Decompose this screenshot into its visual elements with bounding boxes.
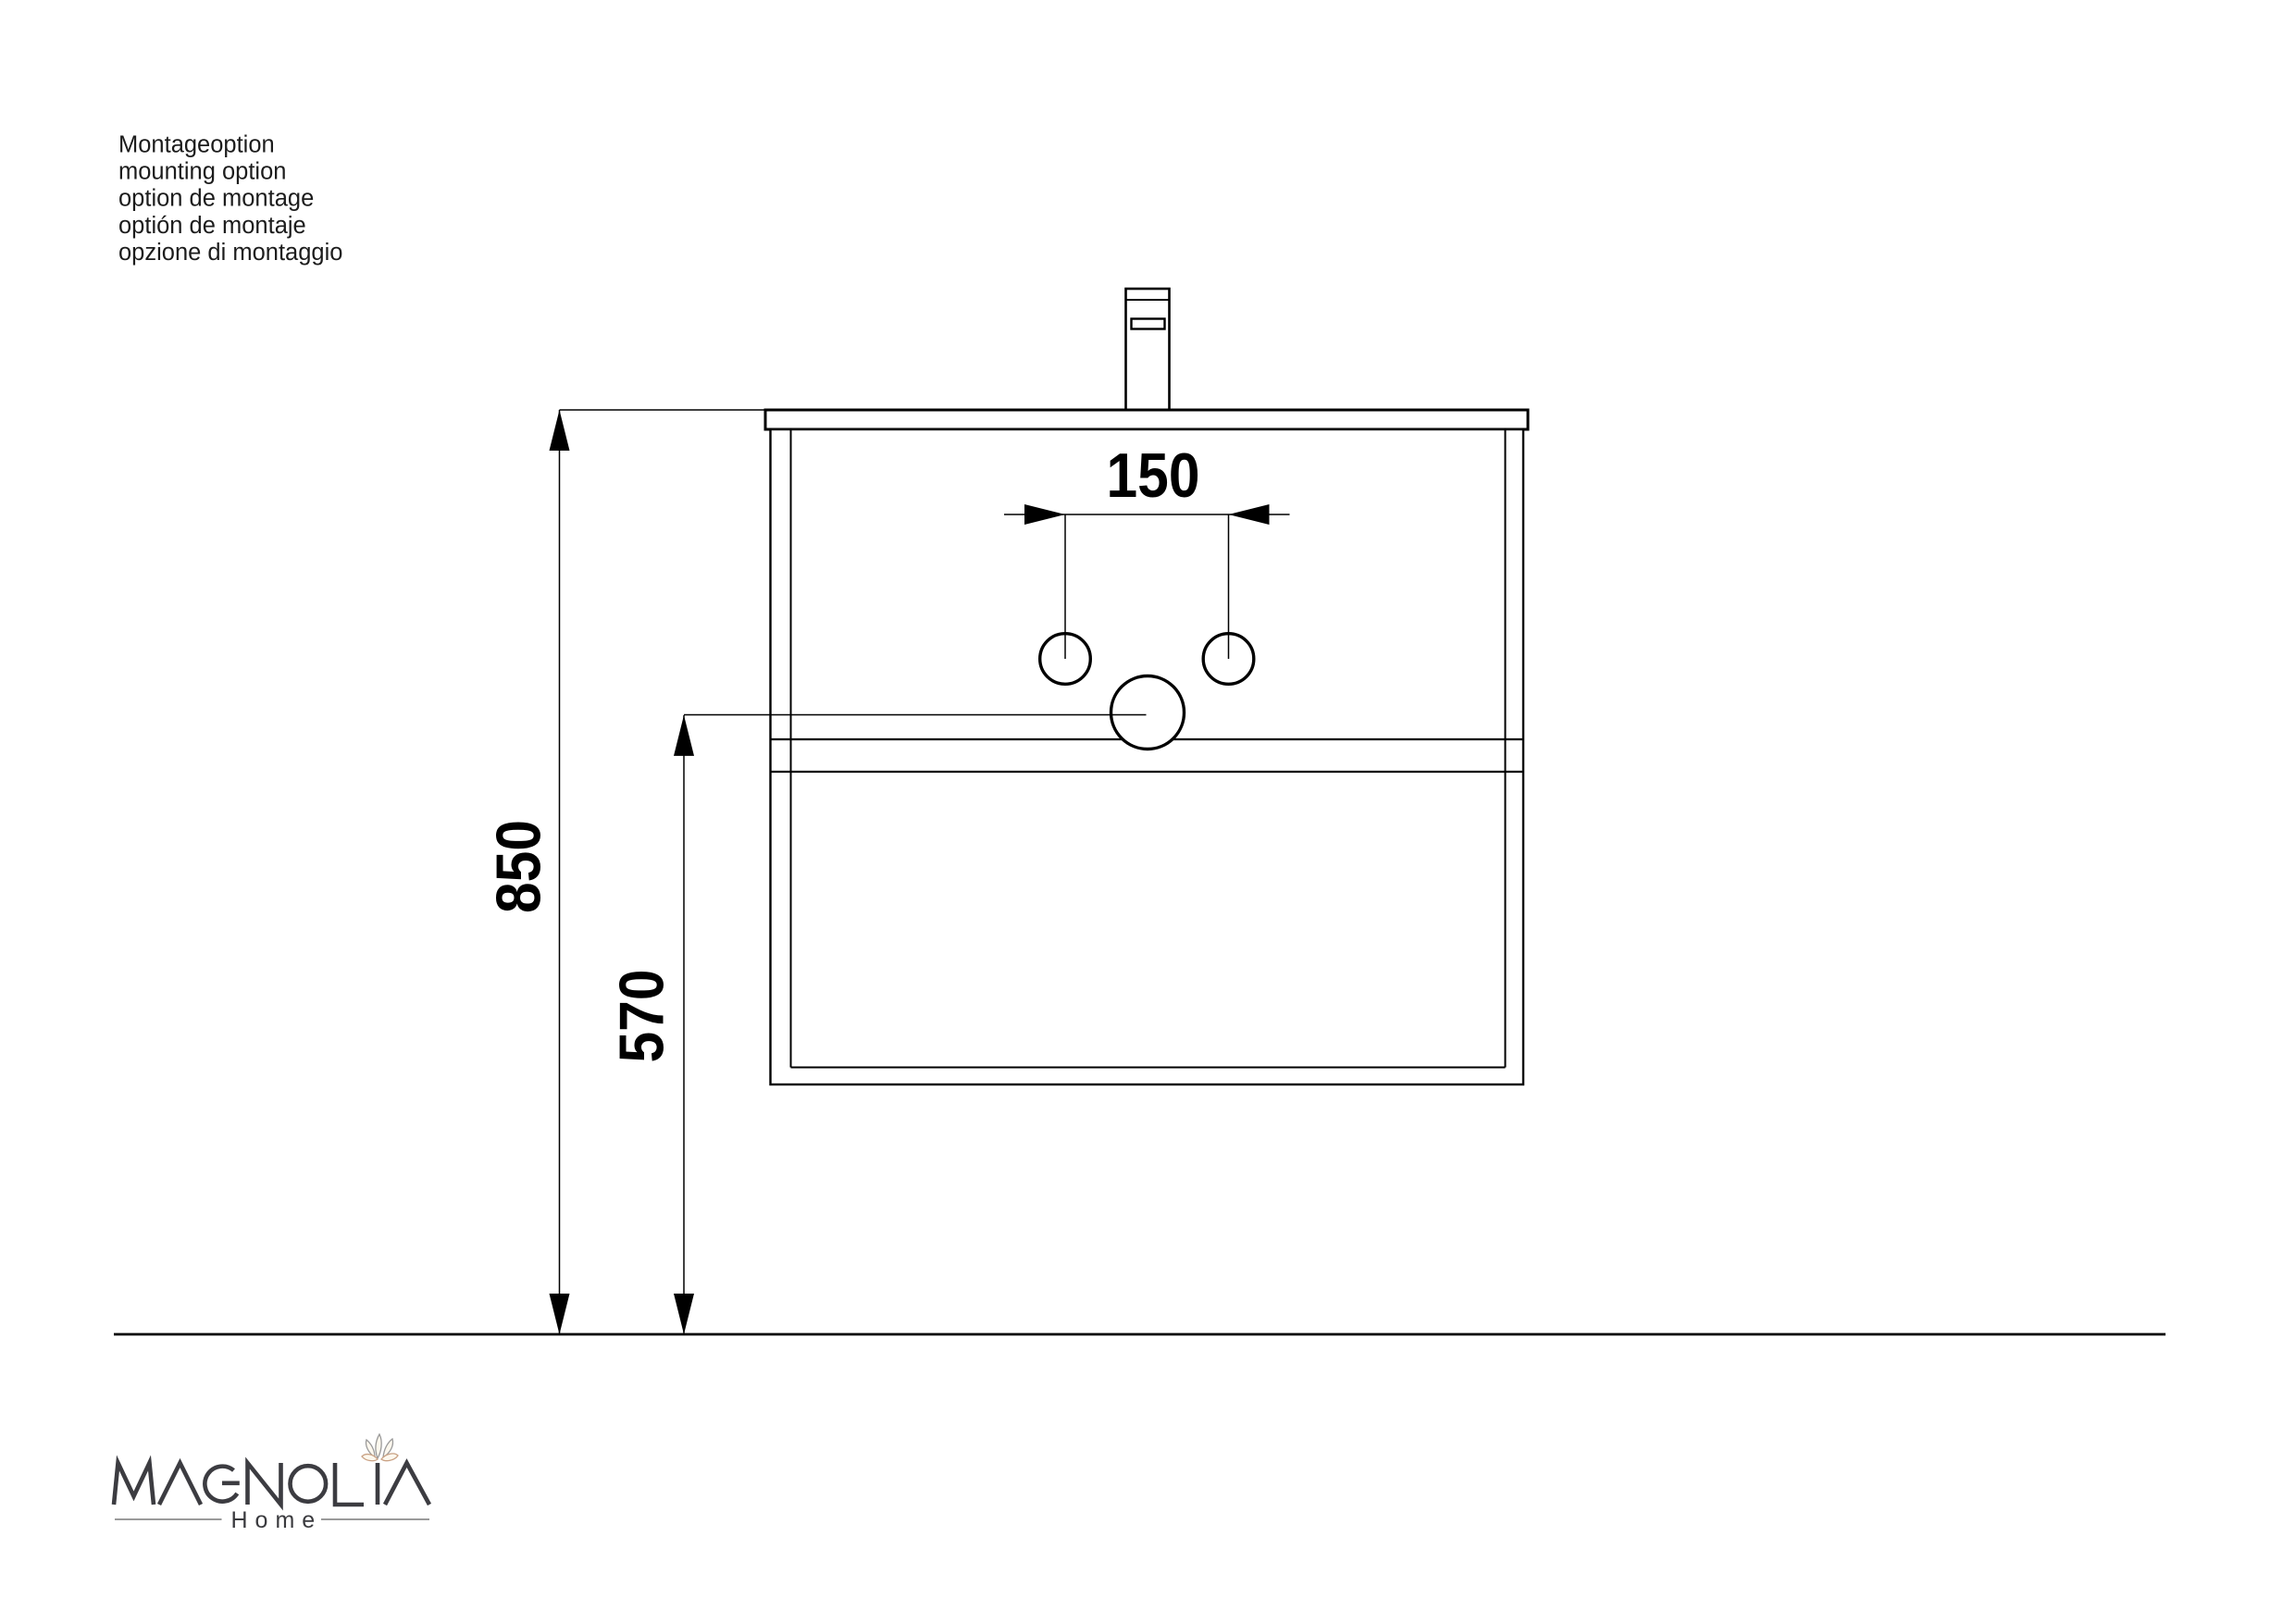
svg-text:mounting option: mounting option [118,159,286,185]
svg-text:850: 850 [483,820,553,913]
svg-text:570: 570 [606,970,676,1063]
svg-text:150: 150 [1107,440,1200,511]
svg-text:option de montage: option de montage [118,186,314,212]
svg-text:optión de montaje: optión de montaje [118,213,306,239]
svg-text:Montageoption: Montageoption [118,132,275,158]
svg-text:Home: Home [231,1507,323,1533]
svg-text:opzione di montaggio: opzione di montaggio [118,240,342,266]
